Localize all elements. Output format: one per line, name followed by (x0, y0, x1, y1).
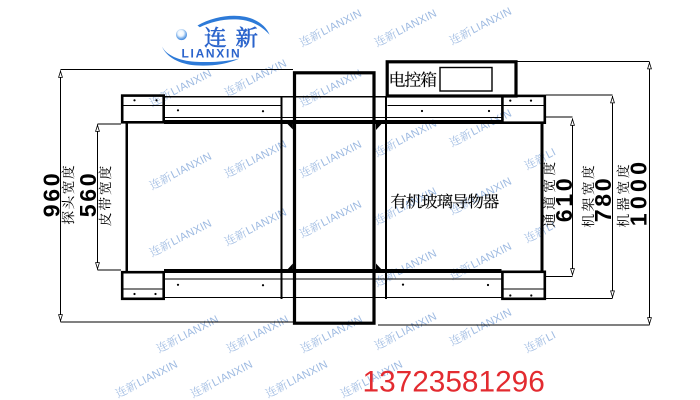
svg-text:13723581296: 13723581296 (363, 366, 545, 399)
svg-text:610: 610 (551, 176, 577, 223)
svg-text:1000: 1000 (626, 158, 652, 226)
svg-text:LIANXIN: LIANXIN (182, 47, 242, 61)
svg-text:780: 780 (590, 176, 616, 223)
svg-text:560: 560 (75, 171, 101, 218)
svg-text:960: 960 (39, 171, 65, 218)
